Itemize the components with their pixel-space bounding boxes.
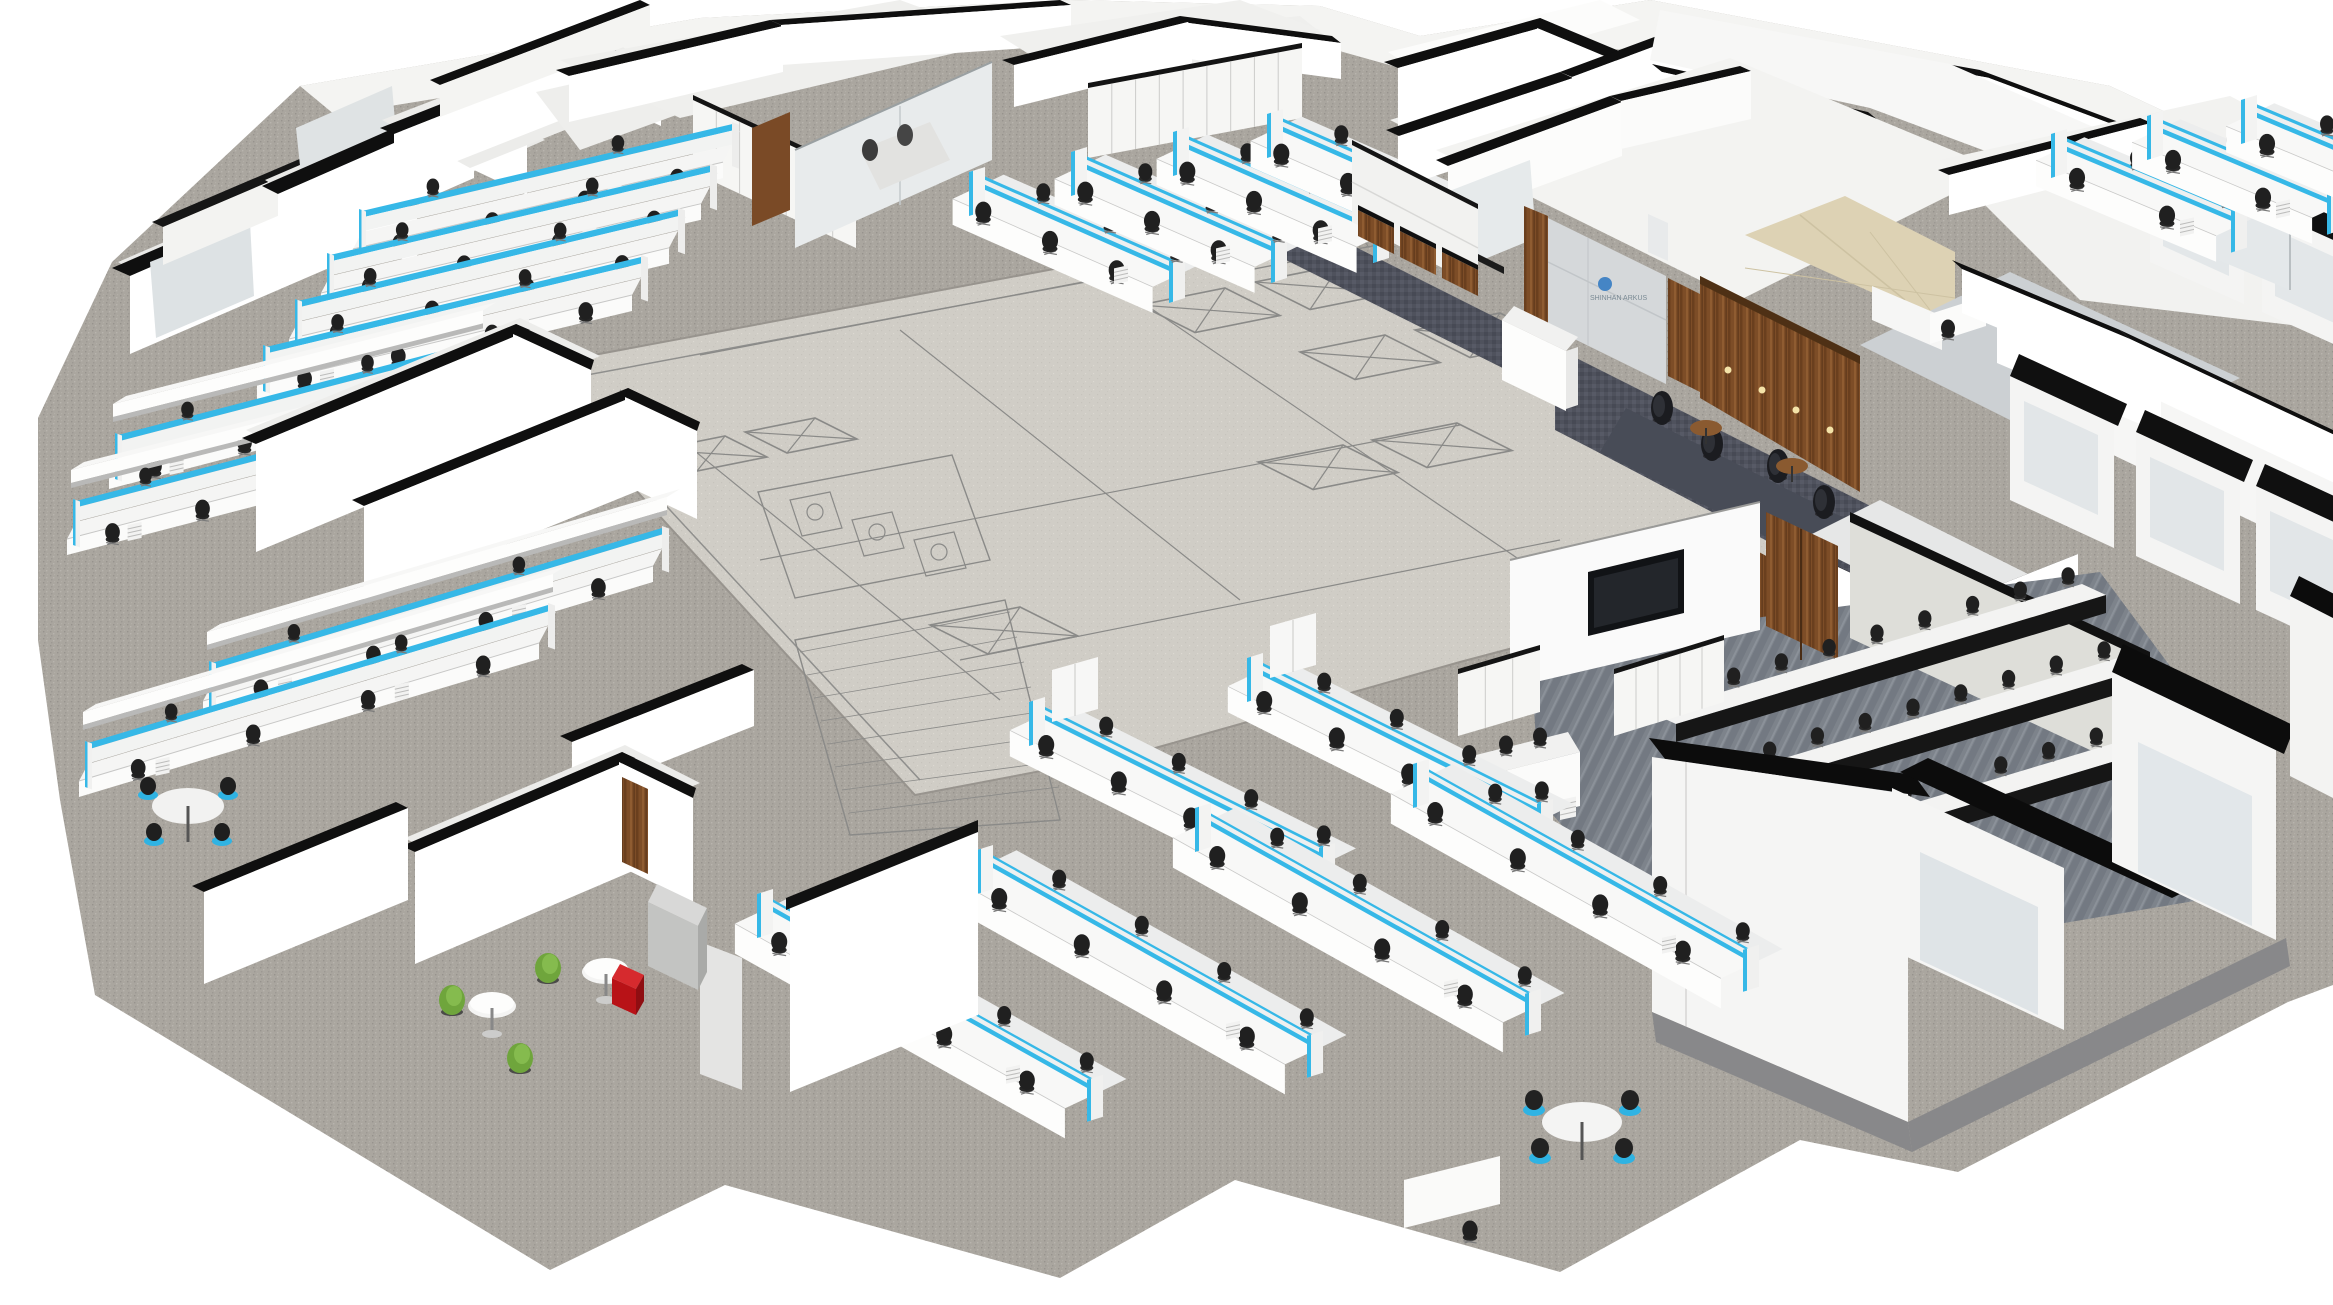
svg-text:SHINHAN ARKUS: SHINHAN ARKUS: [1590, 295, 1648, 302]
